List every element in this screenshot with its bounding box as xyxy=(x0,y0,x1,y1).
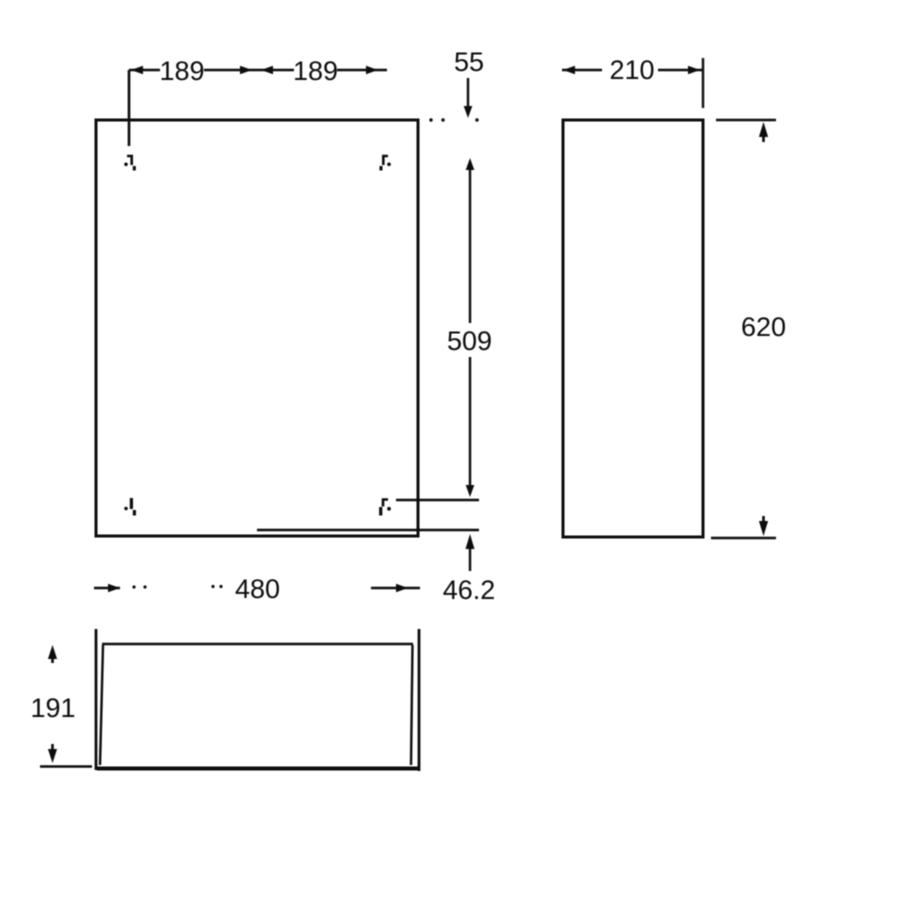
svg-text:189: 189 xyxy=(293,56,338,86)
svg-text:210: 210 xyxy=(609,55,654,85)
svg-text:480: 480 xyxy=(235,574,280,604)
svg-text:620: 620 xyxy=(741,312,786,342)
svg-text:191: 191 xyxy=(30,693,75,723)
svg-text:189: 189 xyxy=(159,56,204,86)
svg-text:55: 55 xyxy=(454,47,484,77)
svg-text:46.2: 46.2 xyxy=(443,575,496,605)
svg-text:509: 509 xyxy=(447,326,492,356)
